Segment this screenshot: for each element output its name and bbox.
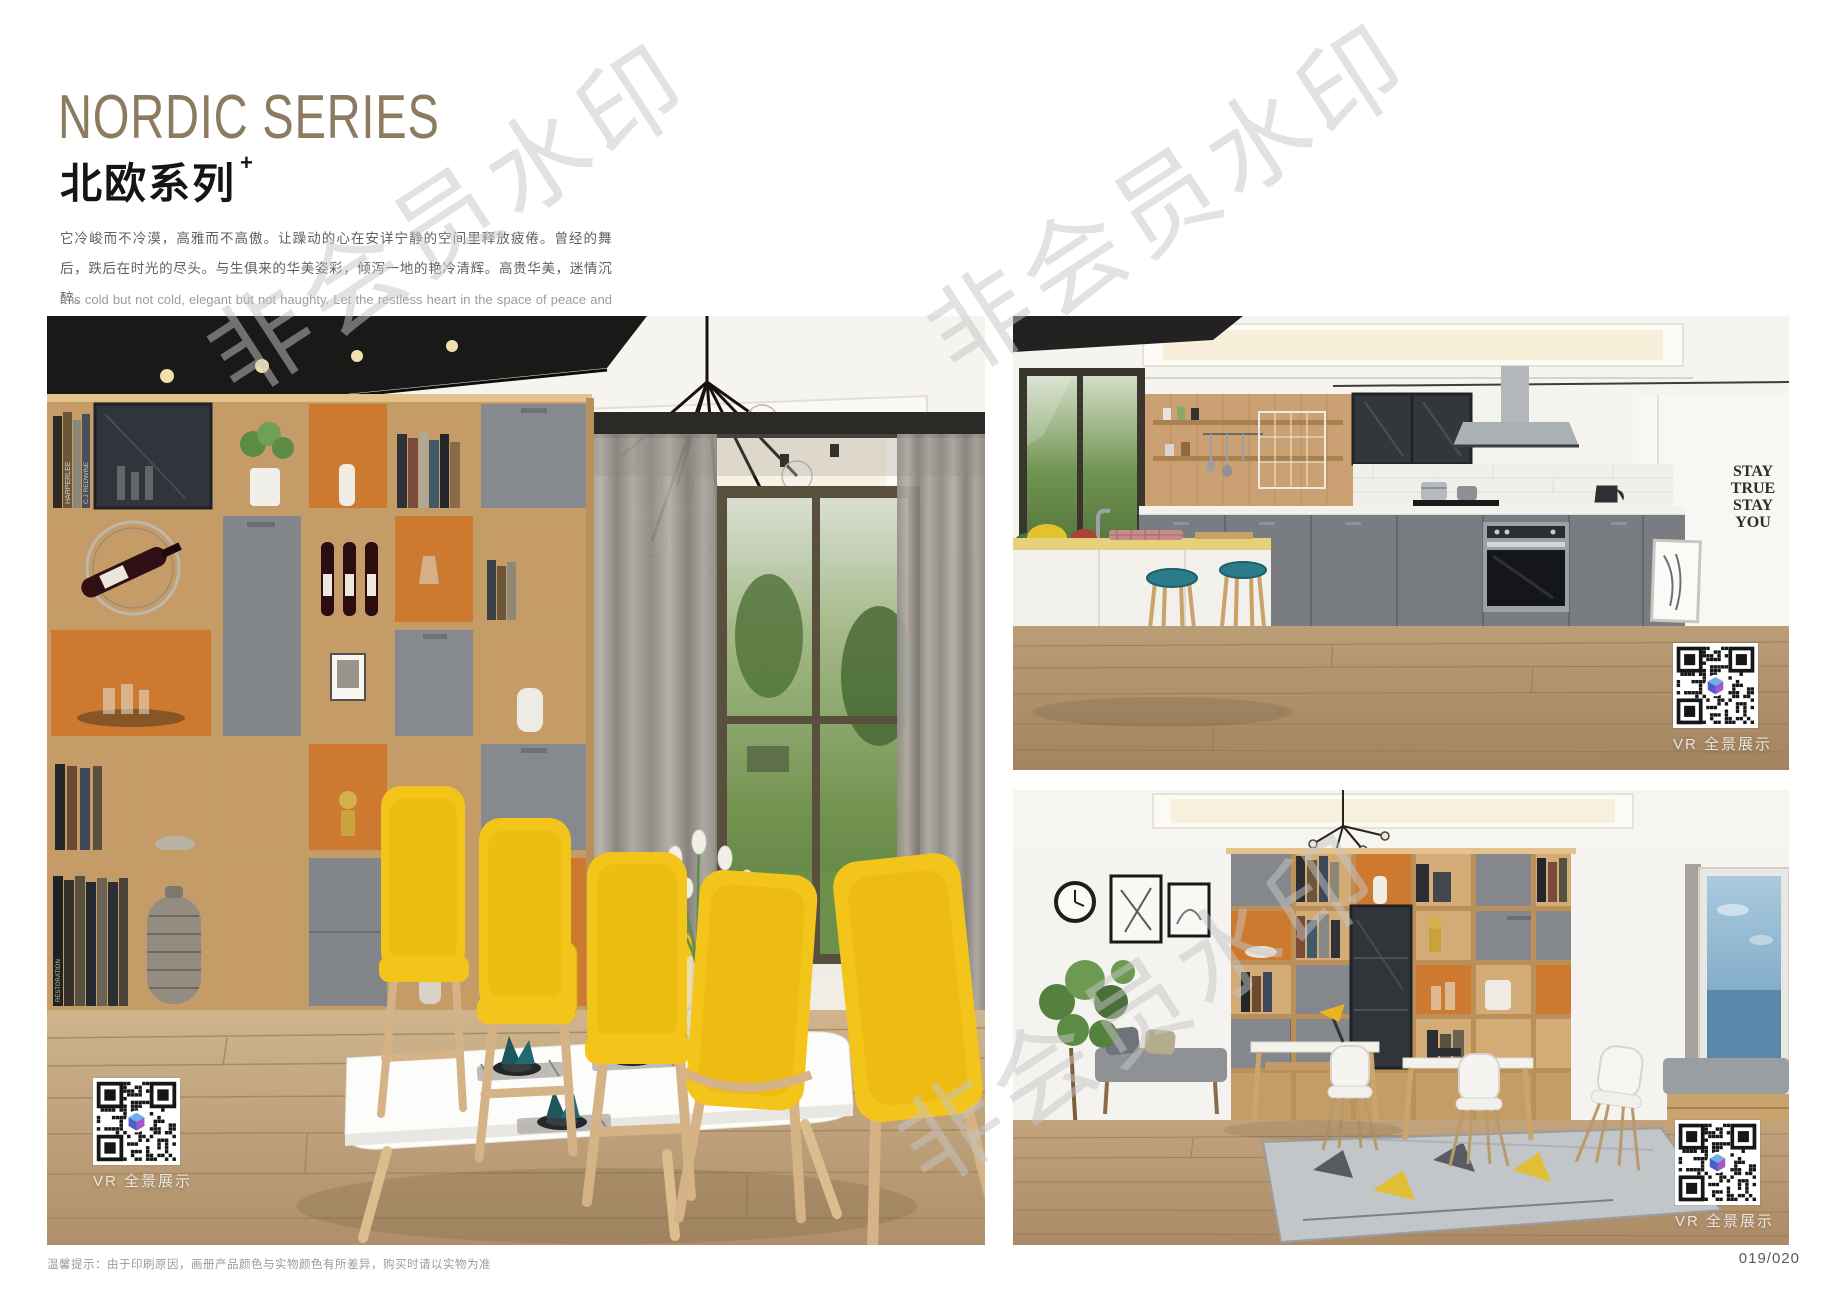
shelving-unit bbox=[1226, 848, 1576, 1122]
sea-view-window bbox=[1685, 864, 1789, 1074]
ceiling bbox=[1013, 790, 1789, 850]
wall-decal-stay-true: STAY TRUE STAY YOU bbox=[1731, 463, 1775, 531]
series-title-zh: 北欧系列+ bbox=[60, 150, 255, 211]
study-illustration bbox=[1013, 790, 1789, 1245]
qr-code bbox=[1675, 1120, 1760, 1205]
wall-art-frames bbox=[1111, 876, 1209, 942]
svg-text:STAY: STAY bbox=[1733, 463, 1773, 480]
built-in-oven bbox=[1483, 522, 1569, 612]
svg-text:TRUE: TRUE bbox=[1731, 480, 1775, 497]
window-seat bbox=[1663, 1058, 1789, 1122]
footer-disclaimer: 温馨提示：由于印刷原因，画册产品颜色与实物颜色有所差异，购买时请以实物为准 bbox=[47, 1256, 491, 1272]
vr-panorama-label: VR 全景展示 bbox=[93, 1170, 192, 1191]
qr-code bbox=[1673, 643, 1758, 728]
catalog-page: NORDIC SERIES 北欧系列+ 它冷峻而不冷漠，高雅而不高傲。让躁动的心… bbox=[0, 0, 1836, 1307]
dining-room-illustration: HARPERLEE C.J REDWINE RESTO bbox=[47, 316, 985, 1245]
svg-text:YOU: YOU bbox=[1735, 514, 1771, 531]
wall-clock bbox=[1056, 883, 1094, 921]
leaning-art-frame bbox=[1652, 540, 1701, 622]
title-plus-mark: + bbox=[240, 150, 255, 175]
vr-panorama-label: VR 全景展示 bbox=[1673, 733, 1772, 754]
book-spine-text: C.J REDWINE bbox=[83, 461, 90, 504]
page-number: 019/020 bbox=[1739, 1250, 1800, 1267]
photo-dining-room: HARPERLEE C.J REDWINE RESTO bbox=[47, 316, 985, 1245]
photo-study-room: VR 全景展示 bbox=[1013, 790, 1789, 1245]
vr-panorama-label: VR 全景展示 bbox=[1675, 1210, 1774, 1231]
book-spine-text: RESTORATION bbox=[56, 959, 62, 1002]
photo-kitchen: STAY TRUE STAY YOU VR 全景展示 bbox=[1013, 316, 1789, 770]
series-title-zh-text: 北欧系列 bbox=[60, 160, 236, 207]
series-title-en: NORDIC SERIES bbox=[58, 82, 440, 153]
qr-code bbox=[93, 1078, 180, 1165]
svg-text:STAY: STAY bbox=[1733, 497, 1773, 514]
book-spine-text: HARPERLEE bbox=[65, 461, 72, 504]
